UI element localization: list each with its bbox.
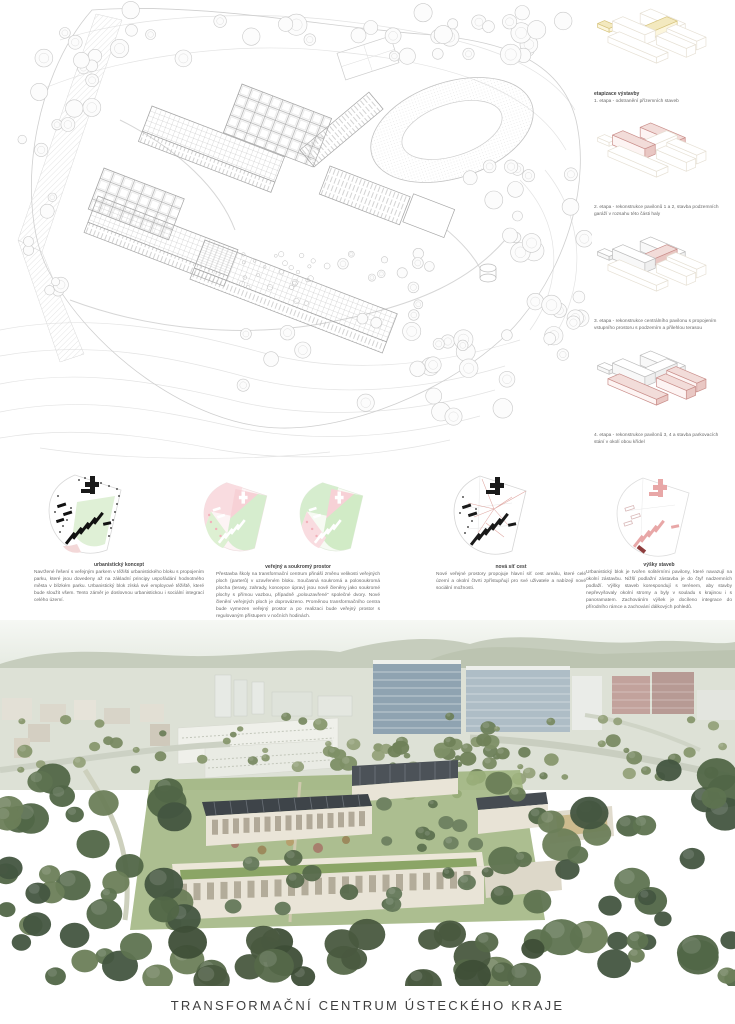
presentation-board: etapizace výstavby 1. etapa - odstranění… xyxy=(0,0,735,1024)
concept-row: urbanistický koncept Navržené řešení s v… xyxy=(0,460,735,620)
axonometric-site-plan xyxy=(0,0,592,462)
running-track xyxy=(357,58,546,201)
phase-2-axonometry xyxy=(590,118,733,204)
phase-3-axonometry xyxy=(590,232,733,318)
site-axonometry xyxy=(0,0,592,462)
concept-diagram-paths xyxy=(438,463,548,563)
title-bar: TRANSFORMAČNÍ CENTRUM ÚSTECKÉHO KRAJE xyxy=(0,986,735,1024)
phase-2: 2. etapa - rekonstrukce pavilonů 1 a 2, … xyxy=(590,118,735,232)
phase-3: 3. etapa - rekonstrukce centrálního pavi… xyxy=(590,232,735,346)
aerial-render xyxy=(0,620,735,986)
caption-paths: nová síť cest Nové veřejné prostory prop… xyxy=(436,564,586,593)
water-tank xyxy=(480,264,496,282)
phase-1-axonometry xyxy=(590,4,733,90)
concept-diagram-urban xyxy=(30,462,146,562)
caption-public-private: veřejný a soukromý prostor Přestavba ško… xyxy=(216,564,380,621)
phase-3-caption: 3. etapa - rekonstrukce centrálního pavi… xyxy=(590,318,735,333)
concept-diagram-heights xyxy=(600,465,712,565)
poster-title: TRANSFORMAČNÍ CENTRUM ÚSTECKÉHO KRAJE xyxy=(171,998,564,1013)
phase-4-caption: 4. etapa - rekonstrukce pavilonů 3, 4 a … xyxy=(590,432,735,447)
aerial-photomontage xyxy=(0,620,735,986)
concept-diagram-public-private-b xyxy=(286,465,382,565)
caption-urban-concept: urbanistický koncept Navržené řešení s v… xyxy=(34,562,204,605)
phase-4-axonometry xyxy=(590,346,733,432)
phase-2-caption: 2. etapa - rekonstrukce pavilonů 1 a 2, … xyxy=(590,204,735,219)
phase-1: etapizace výstavby 1. etapa - odstranění… xyxy=(590,4,735,118)
concept-diagram-public-private-a xyxy=(190,465,286,565)
caption-heights: výšky staveb Urbanistický blok je tvořen… xyxy=(586,562,732,612)
phasing-column: etapizace výstavby 1. etapa - odstranění… xyxy=(590,4,735,460)
phase-4: 4. etapa - rekonstrukce pavilonů 3, 4 a … xyxy=(590,346,735,460)
phase-1-caption: etapizace výstavby 1. etapa - odstranění… xyxy=(590,90,735,106)
phasing-heading: etapizace výstavby xyxy=(594,91,729,98)
